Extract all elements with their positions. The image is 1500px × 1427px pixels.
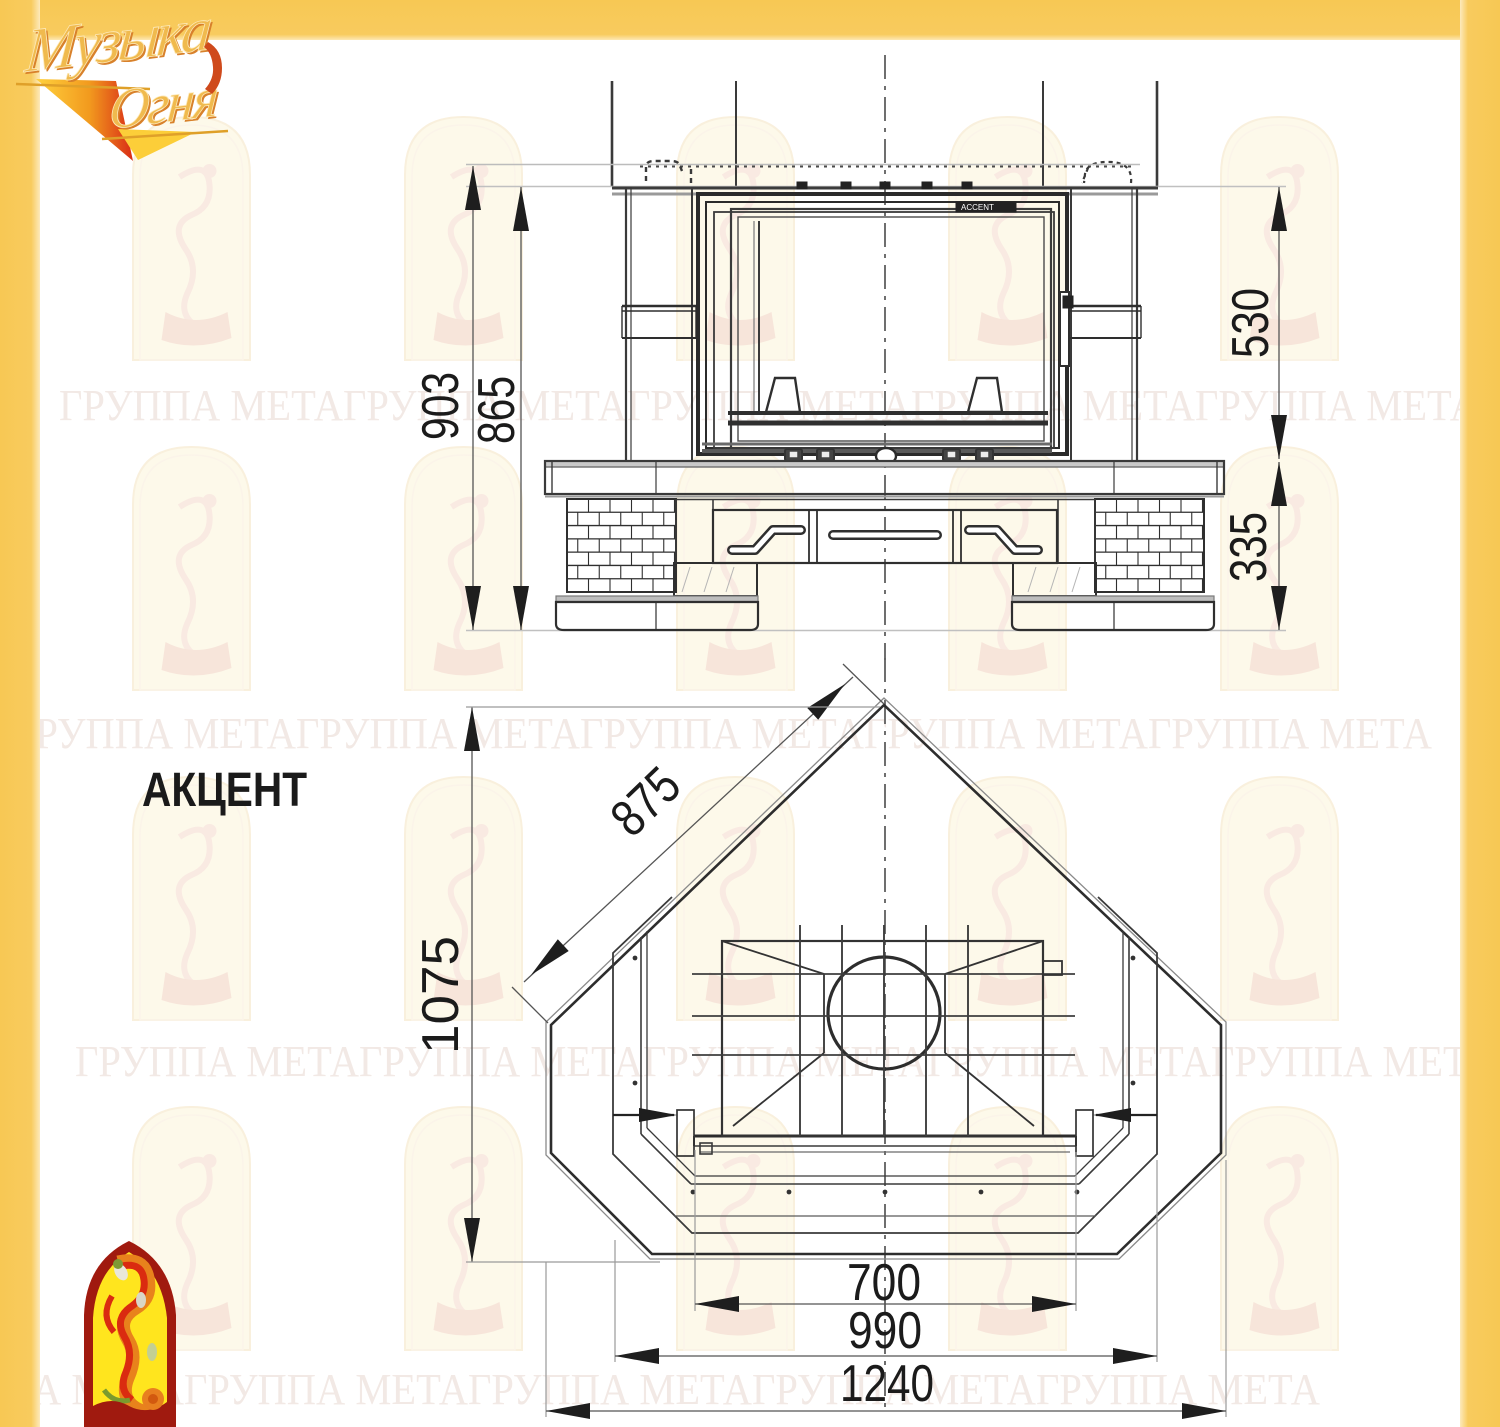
svg-text:530: 530 <box>1222 288 1280 358</box>
svg-text:990: 990 <box>848 1302 922 1360</box>
svg-text:903: 903 <box>412 372 470 440</box>
svg-text:1240: 1240 <box>840 1355 934 1413</box>
svg-text:ГРУППА МЕТАГРУППА МЕТАГРУППА М: ГРУППА МЕТАГРУППА МЕТАГРУППА МЕТАГРУППА … <box>75 1037 1495 1086</box>
svg-text:ГРУППА МЕТАГРУППА МЕТАГРУППА М: ГРУППА МЕТАГРУППА МЕТАГРУППА МЕТАГРУППА … <box>0 1365 1320 1414</box>
svg-text:335: 335 <box>1220 512 1278 582</box>
svg-text:865: 865 <box>468 376 526 444</box>
svg-text:АКЦЕНТ: АКЦЕНТ <box>142 764 307 817</box>
svg-text:1075: 1075 <box>412 936 470 1054</box>
svg-text:ACCENT: ACCENT <box>961 203 994 212</box>
svg-text:ГРУППА МЕТАГРУППА МЕТАГРУППА М: ГРУППА МЕТАГРУППА МЕТАГРУППА МЕТАГРУППА … <box>12 709 1432 758</box>
